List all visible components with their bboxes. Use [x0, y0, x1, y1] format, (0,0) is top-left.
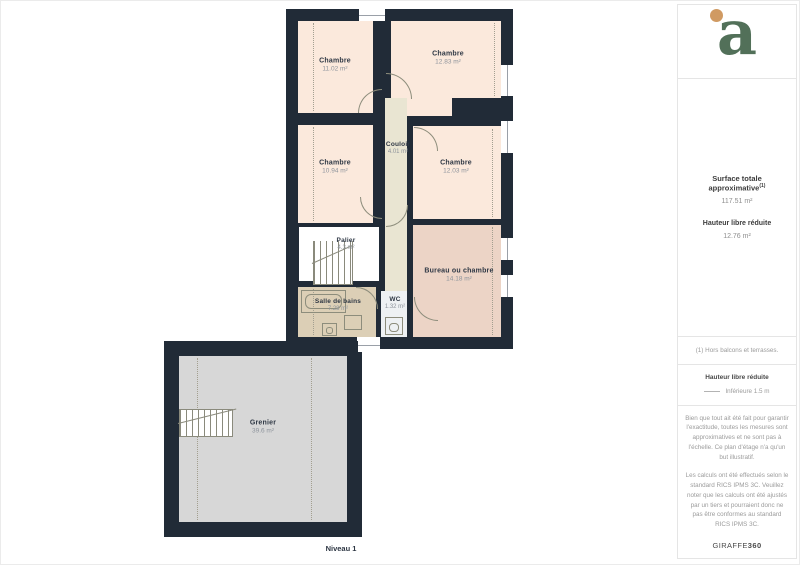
surface-total-heading-text: Surface totale approximative — [709, 174, 762, 193]
surface-summary-card: Surface totale approximative(1) 117.51 m… — [677, 78, 797, 337]
footnote-card: (1) Hors balcons et terrasses. — [677, 336, 797, 365]
room-name: Chambre — [440, 160, 472, 167]
room-name: WC — [385, 296, 405, 303]
room-name: Bureau ou chambre — [424, 268, 493, 275]
level-label: Niveau 1 — [326, 544, 357, 553]
room-area: 14.18 m² — [424, 276, 493, 283]
room-name: Chambre — [319, 160, 351, 167]
stairs-diagonal — [178, 409, 236, 424]
door-opening — [358, 337, 380, 352]
window — [359, 9, 385, 21]
window — [501, 275, 513, 297]
reduced-height-value: 12.76 m² — [723, 233, 751, 240]
surface-total-heading: Surface totale approximative(1) — [684, 174, 790, 193]
room-label: Chambre 11.02 m² — [319, 58, 351, 73]
room-couloir — [385, 98, 407, 291]
logo-letter: a — [717, 4, 757, 69]
brand-name: GIRAFFE — [712, 541, 747, 550]
room-name: Palier — [337, 237, 356, 244]
room-name: Salle de bains — [315, 298, 361, 305]
room-name: Chambre — [432, 51, 464, 58]
surface-total-value: 117.51 m² — [722, 198, 753, 205]
sink-symbol — [344, 315, 362, 330]
room-area: 39.6 m² — [250, 428, 276, 435]
floorplan-page: Chambre 11.02 m² Chambre 12.83 m² Chambr… — [0, 0, 800, 565]
room-name: Grenier — [250, 420, 276, 427]
disclaimer-paragraph-2: Les calculs ont été effectués selon le s… — [685, 471, 789, 530]
toilet-symbol — [385, 317, 403, 335]
window — [501, 65, 513, 96]
reduced-height-boundary-line — [197, 358, 198, 520]
legend-item-text: Inférieure 1.5 m — [725, 388, 769, 395]
room-name: Couloir — [386, 141, 410, 148]
room-grenier — [179, 356, 347, 522]
stairs-symbol — [179, 409, 233, 437]
room-label: WC 1.32 m² — [385, 296, 405, 310]
giraffe360-brand: GIRAFFE360 — [712, 541, 761, 550]
room-label: Palier 4.3 m² — [337, 237, 356, 251]
agency-logo: a — [717, 33, 757, 50]
legend-line-icon — [704, 391, 720, 392]
footnote-text: (1) Hors balcons et terrasses. — [696, 347, 779, 354]
legend-card: Hauteur libre réduite Inférieure 1.5 m — [677, 364, 797, 406]
window — [501, 238, 513, 260]
room-area: 4.3 m² — [337, 245, 356, 251]
reduced-height-boundary-line — [313, 23, 314, 111]
legend-row: Inférieure 1.5 m — [704, 388, 769, 395]
window — [501, 121, 513, 153]
room-label: Salle de bains 7.28 m² — [315, 298, 361, 312]
attic-outline — [164, 341, 362, 537]
surface-footnote-marker: (1) — [759, 183, 765, 189]
logo-card: a — [677, 4, 797, 79]
room-label: Chambre 12.83 m² — [432, 51, 464, 66]
reduced-height-boundary-line — [494, 23, 495, 96]
room-label: Bureau ou chambre 14.18 m² — [424, 268, 493, 283]
reduced-height-boundary-line — [492, 129, 493, 217]
disclaimer-card: Bien que tout ait été fait pour garantir… — [677, 405, 797, 559]
room-label: Grenier 39.6 m² — [250, 420, 276, 435]
info-sidebar: a Surface totale approximative(1) 117.51… — [677, 4, 797, 559]
room-area: 12.03 m² — [440, 168, 472, 175]
room-label: Chambre 12.03 m² — [440, 160, 472, 175]
room-area: 12.83 m² — [432, 59, 464, 66]
toilet-symbol — [322, 323, 337, 336]
disclaimer-paragraph-1: Bien que tout ait été fait pour garantir… — [685, 414, 789, 463]
room-area: 4.01 m² — [386, 149, 410, 155]
reduced-height-boundary-line — [311, 358, 312, 520]
legend-title: Hauteur libre réduite — [705, 374, 769, 381]
room-label: Couloir 4.01 m² — [386, 141, 410, 155]
reduced-height-boundary-line — [313, 127, 314, 221]
reduced-height-heading: Hauteur libre réduite — [703, 220, 771, 227]
room-area: 11.02 m² — [319, 66, 351, 73]
room-label: Chambre 10.94 m² — [319, 160, 351, 175]
room-name: Chambre — [319, 58, 351, 65]
room-area: 1.32 m² — [385, 304, 405, 310]
room-area: 10.94 m² — [319, 168, 351, 175]
brand-suffix: 360 — [748, 541, 762, 550]
room-area: 7.28 m² — [315, 306, 361, 312]
